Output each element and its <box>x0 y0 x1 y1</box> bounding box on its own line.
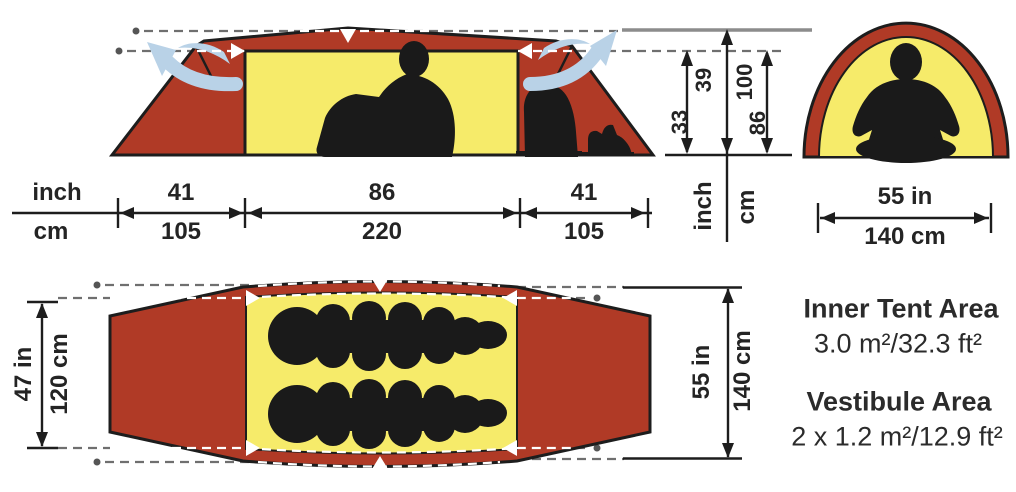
height-dimension-lines <box>665 29 792 242</box>
guide-dot <box>116 48 123 55</box>
scale-unit-inch: inch <box>32 181 81 205</box>
topview-outer-width-in: 55 in <box>690 345 714 400</box>
width-vestibule-right-in: 41 <box>571 181 598 205</box>
height-unit-cm: cm <box>735 190 759 225</box>
height-unit-inch: inch <box>692 181 716 230</box>
scale-unit-cm: cm <box>34 220 69 244</box>
guide-dot <box>594 295 601 302</box>
side-view <box>112 28 653 157</box>
topview-outer-width-cm: 140 cm <box>731 330 755 411</box>
vestibule-area-value: 2 x 1.2 m²/12.9 ft² <box>791 424 1003 451</box>
end-width-in: 55 in <box>878 185 933 209</box>
topview-inner-width-in: 47 in <box>12 347 36 402</box>
width-dimension-scale <box>12 198 652 228</box>
height-peak-in: 39 <box>693 68 715 92</box>
tent-dimension-diagram: inch cm 41 86 41 105 220 105 33 39 100 8… <box>0 0 1016 492</box>
guide-dot <box>94 459 101 466</box>
height-peak-cm: 100 <box>734 64 756 101</box>
width-inner-in: 86 <box>369 181 396 205</box>
width-vestibule-right-cm: 105 <box>564 220 604 244</box>
height-inner-cm: 86 <box>747 111 769 135</box>
width-vestibule-left-in: 41 <box>168 181 195 205</box>
inner-tent-area-title: Inner Tent Area <box>803 296 998 323</box>
guide-dot <box>94 282 101 289</box>
topview-inner-width-cm: 120 cm <box>48 333 72 414</box>
top-view <box>110 279 650 469</box>
inner-tent-area-value: 3.0 m²/32.3 ft² <box>814 331 982 358</box>
end-width-cm: 140 cm <box>864 225 945 249</box>
height-inner-in: 33 <box>669 110 691 134</box>
width-vestibule-left-cm: 105 <box>161 220 201 244</box>
vestibule-area-title: Vestibule Area <box>806 389 991 416</box>
guide-dot <box>133 28 140 35</box>
width-inner-cm: 220 <box>362 220 402 244</box>
